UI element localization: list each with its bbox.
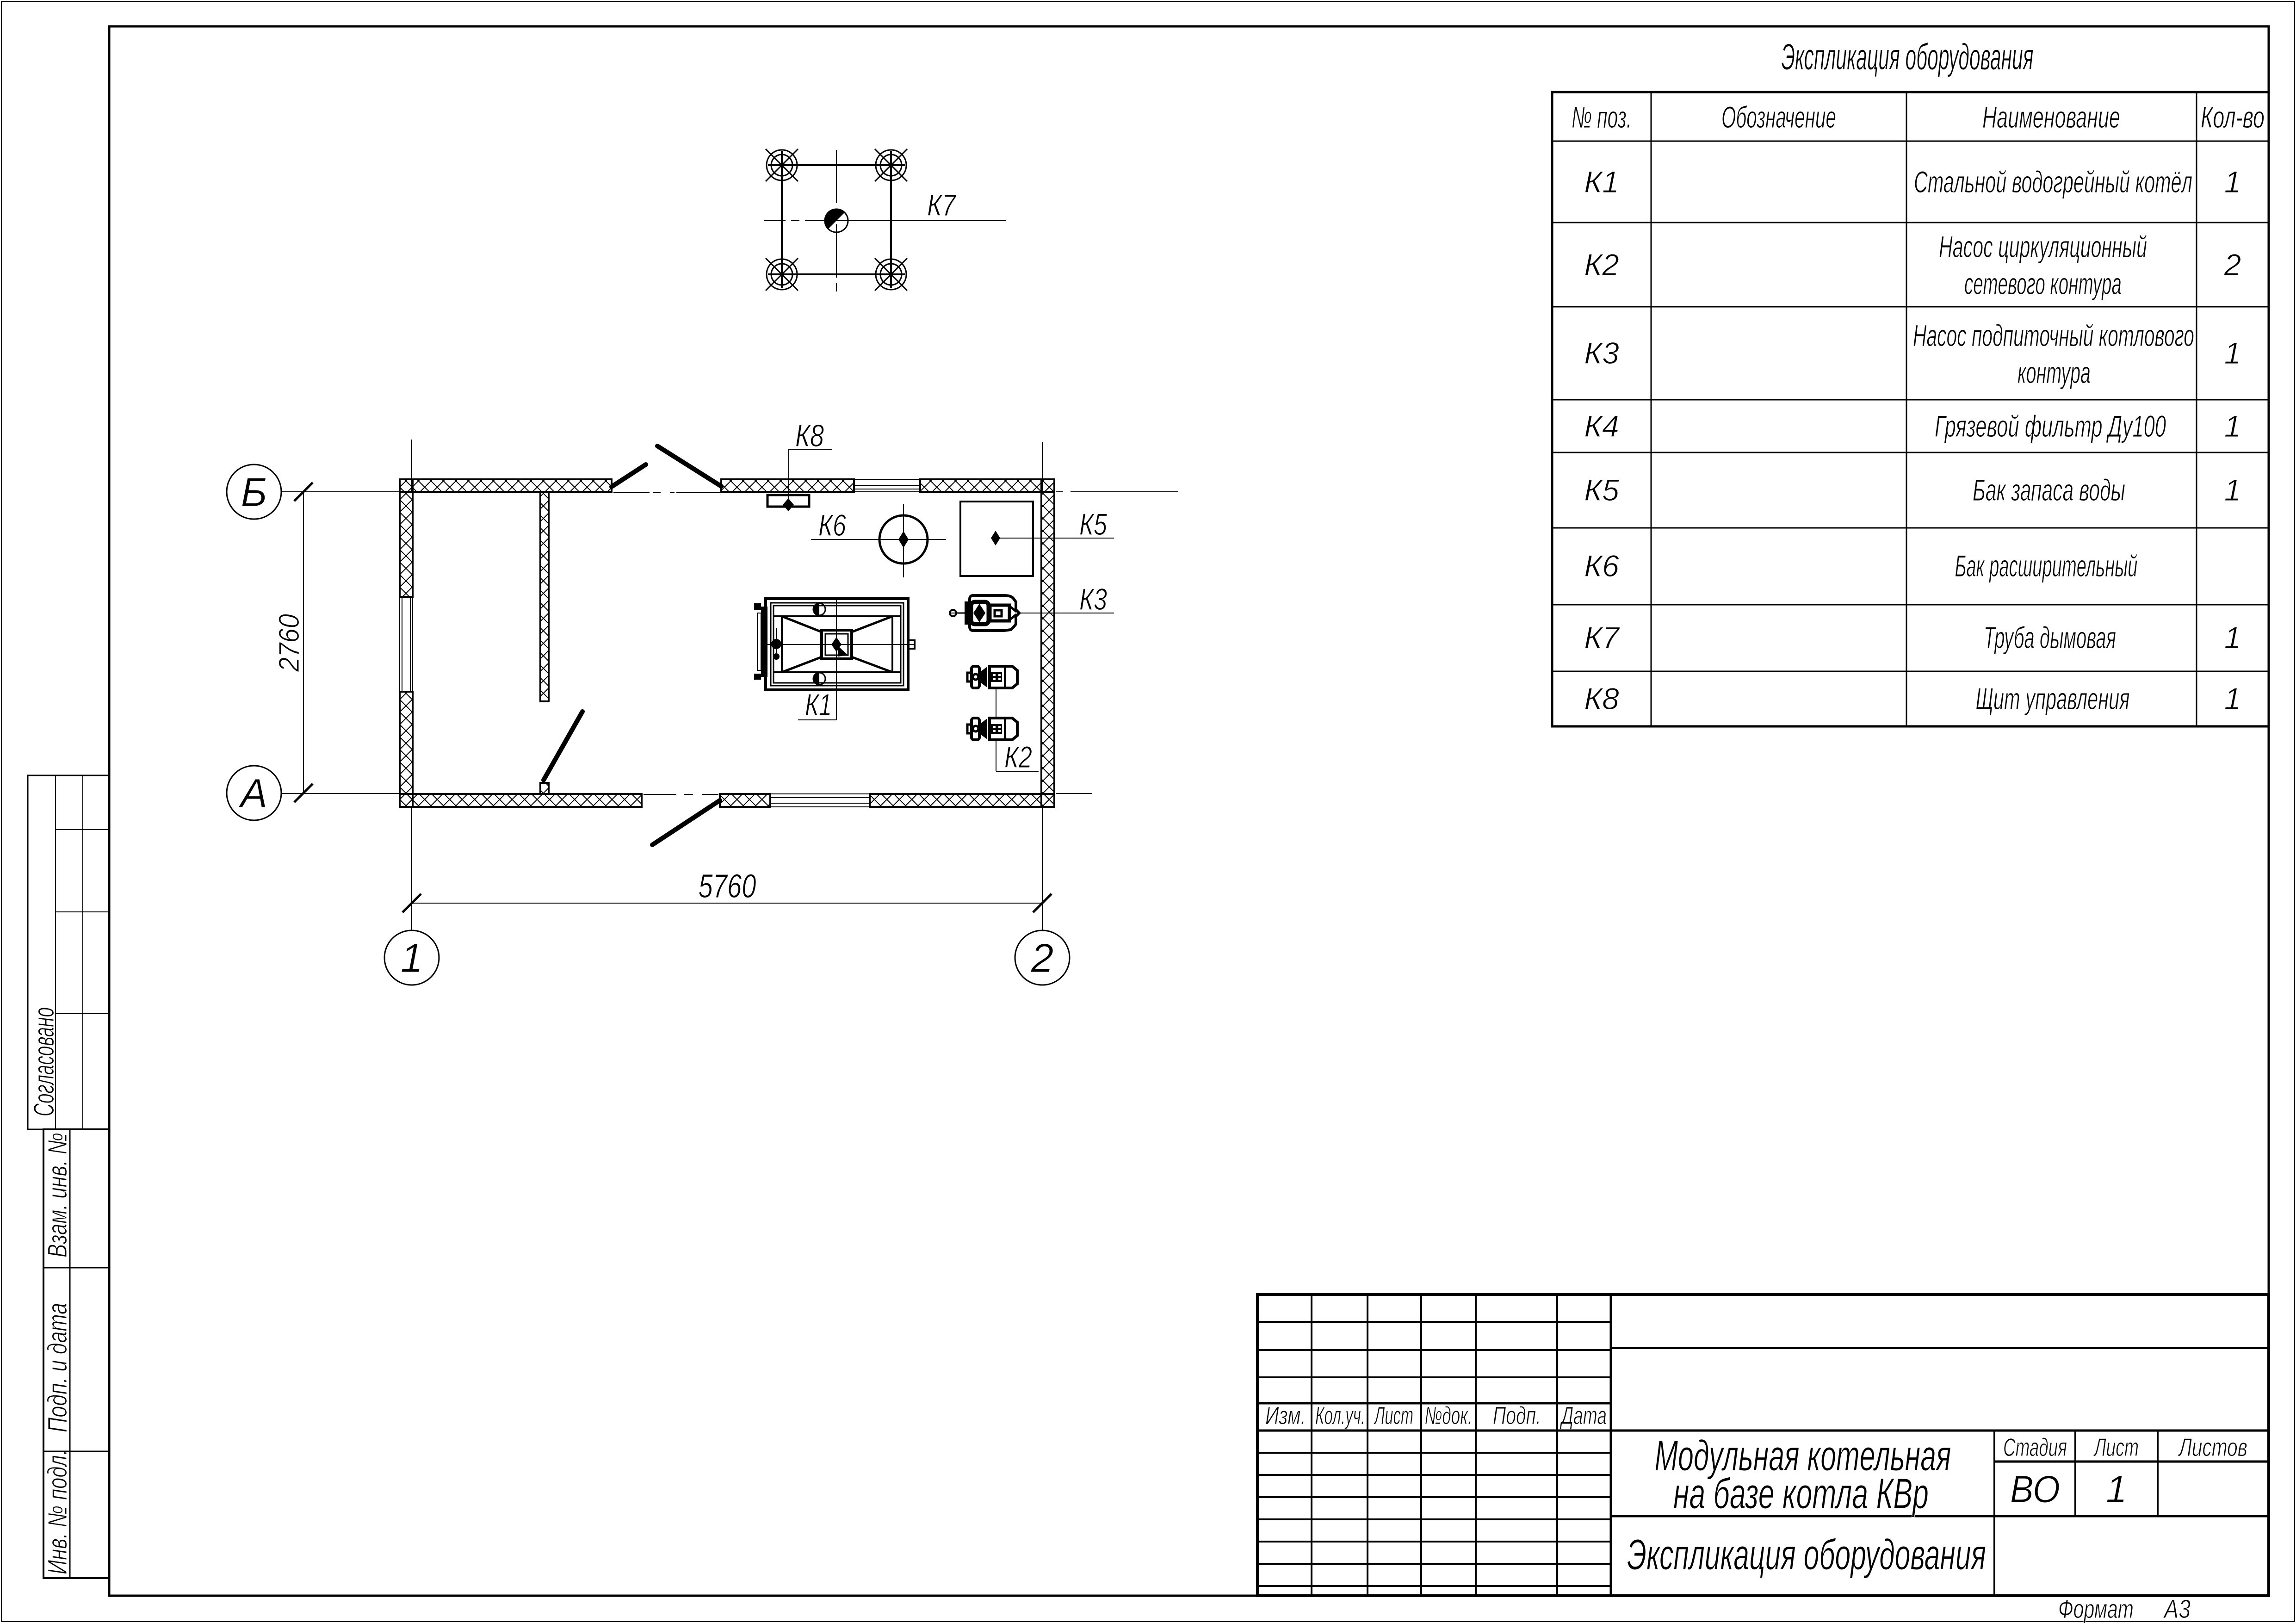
svg-text:сетевого контура: сетевого контура [1964, 266, 2122, 301]
svg-text:2: 2 [2224, 248, 2241, 282]
svg-text:К7: К7 [927, 188, 957, 222]
svg-text:ВО: ВО [2010, 1468, 2060, 1511]
svg-text:Подп. и дата: Подп. и дата [43, 1303, 73, 1432]
svg-text:Б: Б [241, 469, 267, 515]
svg-text:Кол.уч.: Кол.уч. [1315, 1402, 1365, 1430]
svg-text:№док.: №док. [1425, 1402, 1473, 1430]
svg-text:К6: К6 [1584, 549, 1619, 583]
svg-text:№ поз.: № поз. [1572, 100, 1632, 134]
svg-text:К8: К8 [1584, 681, 1619, 716]
svg-text:Изм.: Изм. [1265, 1402, 1306, 1430]
svg-text:Инв. № подл.: Инв. № подл. [43, 1450, 73, 1574]
svg-text:К7: К7 [1584, 620, 1620, 655]
svg-text:К2: К2 [1004, 740, 1032, 774]
svg-text:Насос подпиточный котлового: Насос подпиточный котлового [1913, 318, 2194, 353]
svg-text:Лист: Лист [1374, 1402, 1413, 1430]
svg-text:Листов: Листов [2178, 1433, 2247, 1462]
svg-text:Стальной водогрейный котёл: Стальной водогрейный котёл [1914, 165, 2192, 199]
svg-text:Труба дымовая: Труба дымовая [1984, 620, 2116, 655]
svg-text:1: 1 [2224, 620, 2241, 655]
svg-text:1: 1 [2224, 473, 2241, 507]
svg-text:Стадия: Стадия [2003, 1433, 2067, 1462]
svg-text:К1: К1 [805, 688, 832, 722]
svg-text:К5: К5 [1584, 473, 1619, 507]
svg-text:5760: 5760 [699, 868, 756, 905]
svg-text:на базе котла КВр: на базе котла КВр [1673, 1469, 1929, 1518]
svg-text:Подп.: Подп. [1493, 1402, 1541, 1430]
svg-text:Бак запаса воды: Бак запаса воды [1973, 473, 2125, 507]
svg-text:Грязевой фильтр Ду100: Грязевой фильтр Ду100 [1935, 409, 2166, 443]
svg-text:2: 2 [1031, 935, 1054, 981]
svg-text:Дата: Дата [1560, 1402, 1607, 1430]
svg-text:К8: К8 [795, 418, 824, 453]
svg-text:Щит управления: Щит управления [1976, 681, 2130, 716]
svg-text:К3: К3 [1079, 582, 1107, 616]
svg-text:контура: контура [2018, 355, 2091, 390]
svg-text:Насос циркуляционный: Насос циркуляционный [1939, 229, 2147, 264]
svg-text:1: 1 [2224, 409, 2241, 443]
svg-text:1: 1 [401, 935, 423, 981]
svg-text:Обозначение: Обозначение [1721, 100, 1836, 134]
svg-text:Формат: Формат [2058, 1594, 2134, 1623]
svg-text:Экспликация оборудования: Экспликация оборудования [1782, 36, 2034, 77]
svg-text:Бак расширительный: Бак расширительный [1955, 549, 2138, 583]
svg-text:А: А [238, 770, 268, 816]
svg-text:1: 1 [2106, 1468, 2127, 1511]
svg-text:К1: К1 [1584, 165, 1619, 199]
svg-text:1: 1 [2224, 165, 2241, 199]
svg-text:Наименование: Наименование [1982, 100, 2120, 134]
svg-text:1: 1 [2224, 681, 2241, 716]
svg-text:Кол-во: Кол-во [2201, 100, 2265, 134]
svg-text:1: 1 [2224, 336, 2241, 370]
svg-text:К6: К6 [818, 508, 846, 542]
svg-text:А3: А3 [2163, 1594, 2191, 1623]
svg-text:2760: 2760 [273, 614, 305, 672]
svg-text:К2: К2 [1584, 248, 1619, 282]
svg-text:Экспликация оборудования: Экспликация оборудования [1627, 1530, 1986, 1579]
svg-text:Согласовано: Согласовано [28, 1007, 60, 1116]
svg-text:К5: К5 [1079, 507, 1107, 541]
svg-text:К4: К4 [1584, 409, 1619, 443]
svg-text:Взам. инв. №: Взам. инв. № [43, 1133, 73, 1258]
svg-text:Лист: Лист [2093, 1433, 2139, 1462]
svg-text:К3: К3 [1584, 336, 1619, 370]
